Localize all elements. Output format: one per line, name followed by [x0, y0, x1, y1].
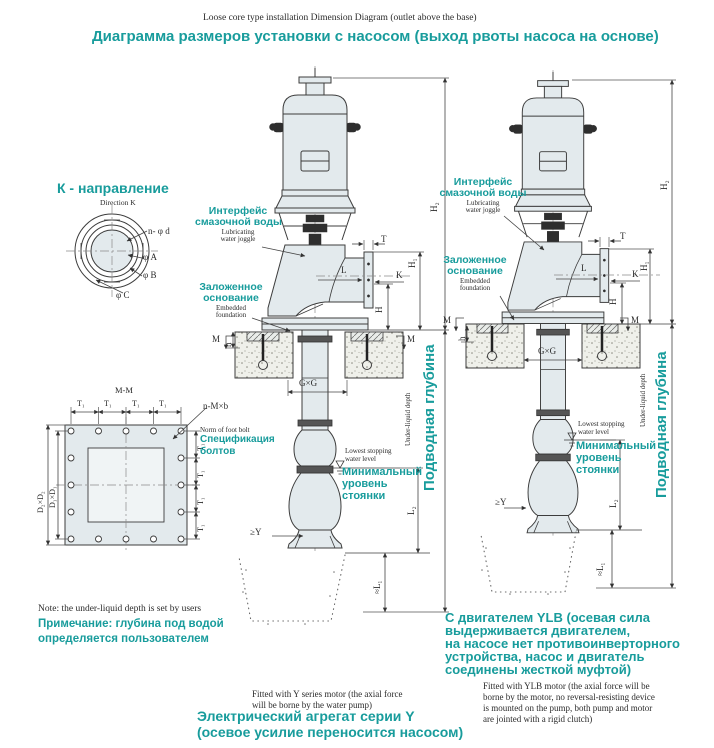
- dim-H: H: [374, 307, 384, 314]
- diagram-page: Loose core type installation Dimension D…: [0, 0, 714, 748]
- dim-L1: ≈L₁: [372, 580, 382, 594]
- dim-geY: ≥Y: [250, 527, 261, 537]
- dim-bolt-holes: n- φ d: [148, 226, 170, 236]
- lowest-level-ru: стоянки: [576, 464, 619, 476]
- lube-label-en: water joggle: [195, 236, 281, 244]
- underliquid-depth-ru: Подводная глубина: [654, 351, 671, 498]
- dim-h: h: [457, 337, 467, 342]
- dim-L2: L₂: [608, 499, 618, 508]
- direction-k-heading: К - направление: [57, 181, 169, 197]
- title-ru: Диаграмма размеров установки с насосом (…: [92, 29, 659, 46]
- dim-M: M: [407, 334, 415, 344]
- flange-view: [66, 205, 158, 297]
- underliquid-depth-en: Under-liquid depth: [640, 374, 648, 427]
- dim-dia-c: φ C: [116, 290, 129, 300]
- caption-y-en: Fitted with Y series motor (the axial fo…: [252, 689, 403, 699]
- dim-t1: T₁: [197, 524, 206, 532]
- dim-H: H: [608, 299, 618, 306]
- caption-ylb-ru: соединены жесткой муфтой): [445, 663, 631, 678]
- dim-GG: G×G: [538, 346, 556, 356]
- dim-K: K: [396, 270, 403, 280]
- dim-bolt-callout: n-M×b: [203, 401, 228, 411]
- lube-label-ru: смазочной воды: [438, 188, 528, 200]
- dim-d2d2: D₂×D₂: [37, 491, 46, 513]
- dim-dia-b: φ B: [143, 270, 156, 280]
- foundation-label-en: foundation: [441, 285, 509, 293]
- foundation-label-ru: основание: [193, 293, 269, 305]
- foundation-label-en: foundation: [193, 312, 269, 320]
- dim-t1: T₁: [77, 400, 85, 409]
- dim-M: M: [631, 315, 639, 325]
- caption-ylb-en: are jointed with a rigid clutch): [483, 714, 592, 724]
- note-ru: определяется пользователем: [38, 633, 209, 646]
- left-pump: [226, 66, 449, 625]
- dim-t1: T₁: [197, 497, 206, 505]
- bolt-norm-ru: Спецификация: [200, 434, 275, 445]
- lowest-level-en: water level: [578, 429, 609, 437]
- dim-d1d1: D₁×D₁: [49, 486, 58, 508]
- dim-t1: T₁: [104, 400, 112, 409]
- dim-L2: L₂: [406, 506, 416, 515]
- lowest-level-ru: Минимальный: [342, 466, 422, 478]
- note-en: Note: the under-liquid depth is set by u…: [38, 604, 201, 615]
- right-pump: [456, 70, 676, 595]
- lowest-level-ru: стоянки: [342, 490, 385, 502]
- base-plate-view: [46, 407, 206, 553]
- dim-M: M: [212, 334, 220, 344]
- underliquid-depth-ru: Подводная глубина: [422, 344, 439, 491]
- lowest-level-ru: уровень: [576, 452, 622, 464]
- caption-ylb-en: Fitted with YLB motor (the axial force w…: [483, 681, 650, 691]
- lowest-level-ru: Минимальный: [576, 440, 656, 452]
- dim-t1: T₁: [197, 470, 206, 478]
- direction-k-subheading: Direction K: [100, 199, 136, 207]
- dim-geY: ≥Y: [495, 497, 506, 507]
- dim-M: M: [443, 315, 451, 325]
- underliquid-depth-en: Under-liquid depth: [405, 393, 413, 446]
- dim-dia-a: φ A: [143, 252, 157, 262]
- caption-ylb-en: borne by the motor, no reversal-resistin…: [483, 692, 655, 702]
- lowest-level-en: water level: [345, 456, 376, 464]
- dim-t1: T₁: [159, 400, 167, 409]
- dim-T: T: [620, 231, 626, 241]
- lube-label-en: water joggle: [438, 207, 528, 215]
- title-en: Loose core type installation Dimension D…: [203, 13, 477, 24]
- dim-H1: H₁: [639, 261, 649, 271]
- caption-y-ru: (осевое усилие переносится насосом): [197, 725, 463, 741]
- dim-h: h: [223, 343, 233, 348]
- dim-T: T: [381, 234, 387, 244]
- dim-t1: T₁: [132, 400, 140, 409]
- dim-K: K: [632, 269, 639, 279]
- dim-GG: G×G: [299, 378, 317, 388]
- lube-label-ru: смазочной воды: [195, 217, 281, 229]
- note-ru: Примечание: глубина под водой: [38, 618, 224, 631]
- foundation-label-ru: основание: [441, 266, 509, 278]
- caption-ylb-en: is mounted on the pump, both pump and mo…: [483, 703, 652, 713]
- dim-L: L: [581, 263, 587, 273]
- section-mm-heading: M-M: [115, 386, 133, 396]
- lowest-level-ru: уровень: [342, 478, 388, 490]
- dim-L: L: [341, 265, 347, 275]
- caption-y-ru: Электрический агрегат серии Y: [197, 709, 415, 725]
- dim-H1: H₁: [407, 258, 417, 268]
- dim-H2: H₂: [659, 180, 669, 190]
- dim-L1: ≈L₁: [595, 562, 605, 576]
- bolt-norm-ru: болтов: [200, 446, 235, 457]
